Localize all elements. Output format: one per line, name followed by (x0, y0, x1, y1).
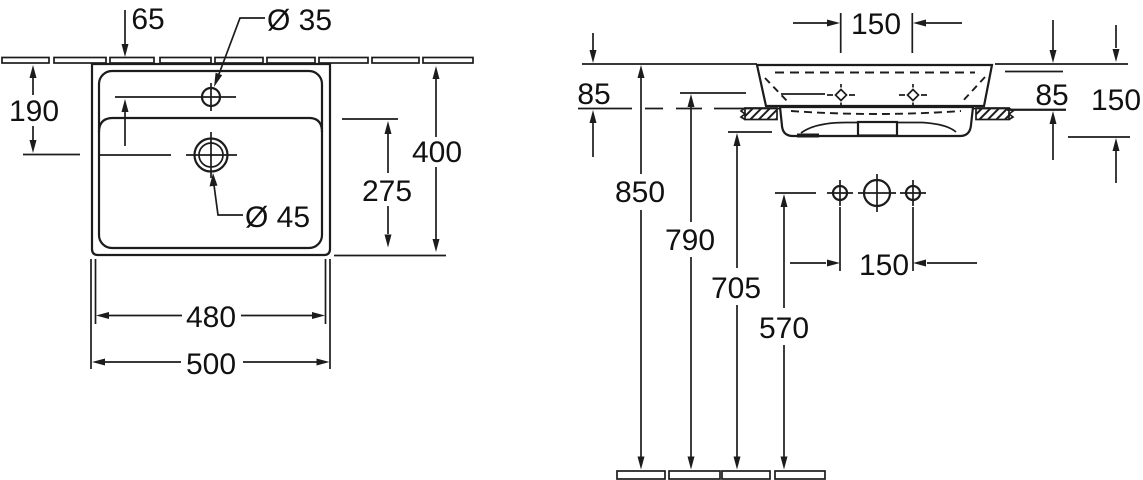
dim-inner-width: 480 (96, 259, 326, 334)
dim-850: 850 (615, 65, 665, 470)
dim-drain-dia: Ø 45 (210, 173, 311, 234)
dim-150-right: 150 (1091, 25, 1141, 183)
dim-drain-from-wall: 190 (9, 65, 80, 155)
dim-480-label: 480 (186, 301, 236, 334)
dim-85-right-label: 85 (1035, 79, 1068, 112)
dim-570-label: 570 (759, 312, 809, 345)
dim-150-bottom-label: 150 (859, 249, 909, 282)
basin-side-outline (757, 65, 992, 106)
drawing-sheet: 65 Ø 35 190 Ø 45 275 (0, 0, 1143, 480)
dim-705: 705 (711, 133, 761, 470)
dim-65-label: 65 (131, 3, 164, 36)
dim-150-right-label: 150 (1091, 84, 1141, 117)
dim-dia45-label: Ø 45 (245, 201, 310, 234)
wall-tiles (2, 58, 473, 64)
dim-tap-spacing: 150 (793, 8, 962, 53)
dim-dia35-label: Ø 35 (267, 4, 332, 37)
connection-points (827, 174, 926, 212)
dim-outlet-spacing: 150 (790, 207, 977, 282)
dim-85-right: 85 (1035, 20, 1068, 160)
plan-view: 65 Ø 35 190 Ø 45 275 (2, 3, 473, 381)
dim-570: 570 (759, 194, 809, 470)
dim-overall-depth: 400 (334, 66, 462, 256)
dim-400-label: 400 (412, 136, 462, 169)
dim-tap-dia: Ø 35 (214, 4, 332, 87)
side-view: 150 85 85 150 850 (577, 8, 1141, 479)
dim-275-label: 275 (362, 175, 412, 208)
dim-850-label: 850 (615, 176, 665, 209)
drain-marker (98, 132, 237, 178)
dim-790-label: 790 (665, 224, 715, 257)
dim-500-label: 500 (186, 348, 236, 381)
dim-85-left: 85 (577, 33, 610, 157)
dim-drain-to-front: 275 (342, 119, 412, 248)
dim-85-left-label: 85 (577, 78, 610, 111)
floor-tiles (617, 471, 825, 479)
dim-tap-offset: 65 (122, 3, 165, 146)
technical-drawing: 65 Ø 35 190 Ø 45 275 (0, 0, 1143, 480)
dim-190-label: 190 (9, 95, 59, 128)
dim-150-top-label: 150 (851, 8, 901, 41)
tap-hole-marker (115, 83, 236, 111)
siphon-cover (780, 107, 973, 136)
bowl-edge (99, 118, 322, 132)
dim-705-label: 705 (711, 272, 761, 305)
dim-790: 790 (665, 94, 715, 470)
